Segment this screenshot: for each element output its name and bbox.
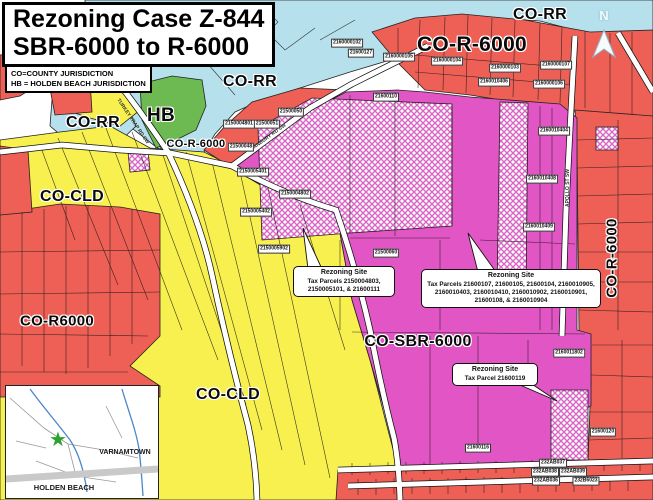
parcel-label: 2150004801	[223, 120, 255, 129]
inset-label-holden-beach: HOLDEN BEACH	[34, 483, 94, 492]
zone-label-co-rr-top-right: CO-RR	[513, 6, 567, 24]
map-title: Rezoning Case Z-844 SBR-6000 to R-6000	[2, 2, 275, 67]
rezoning-callout-1: Rezoning Site Tax Parcels 2150004803, 21…	[293, 266, 395, 297]
callout-body: Tax Parcels 2150004803, 2150005101, & 21…	[298, 278, 390, 294]
parcel-label: 2150005402	[240, 208, 272, 217]
locator-inset-map: ★ VARNAMTOWN HOLDEN BEACH	[5, 385, 159, 499]
inset-label-varnamtown: VARNAMTOWN	[99, 449, 150, 456]
inset-canvas: ★ VARNAMTOWN HOLDEN BEACH	[6, 386, 158, 498]
parcel-label: 232AB036	[532, 477, 560, 486]
zone-label-co-r6000-top: CO-R-6000	[417, 33, 527, 57]
parcel-label: 2150005902	[258, 245, 290, 254]
parcel-label: 2160000104	[431, 57, 463, 66]
parcel-label: 232AB039	[559, 468, 587, 477]
parcel-label: 232AB038	[531, 468, 559, 477]
zone-label-co-r6000-left: CO-R6000	[20, 313, 94, 330]
jurisdiction-legend: CO=COUNTY JURISDICTION HB = HOLDEN BEACH…	[5, 65, 152, 93]
parcel-label: 2160000106	[533, 80, 565, 89]
parcel-label: 2160000105	[383, 53, 415, 62]
parcel-label: 2160010406	[478, 78, 510, 87]
inset-shore-band	[6, 469, 158, 479]
parcel-label: 21500048	[228, 143, 254, 152]
zone-label-co-cld-lower: CO-CLD	[196, 386, 260, 404]
parcel-label: 2150004802	[279, 190, 311, 199]
callout-body: Tax Parcels 21600107, 21600105, 21600104…	[426, 281, 596, 306]
legend-line1: CO=COUNTY JURISDICTION	[11, 69, 146, 79]
parcel-label: 21500050	[278, 108, 304, 117]
road-label-apollo: APOLLO ST SW	[565, 169, 571, 207]
parcel-label: 21600110	[373, 93, 399, 102]
parcel-label: 2160011802	[553, 349, 585, 358]
inset-waterways	[30, 389, 143, 496]
parcel-label: 2150005401	[237, 168, 269, 177]
zone-label-co-cld-upper: CO-CLD	[40, 188, 104, 206]
zone-label-co-rr-left: CO-RR	[66, 114, 120, 132]
callout-body: Tax Parcel 21600119	[457, 375, 533, 383]
zone-label-co-sbr-6000: CO-SBR-6000	[364, 333, 471, 351]
parcel-label: 2160000102	[331, 39, 363, 48]
parcel-label: 2160000107	[540, 61, 572, 70]
zone-label-co-rr-mid: CO-RR	[223, 73, 277, 91]
parcel-label: 21600127	[348, 49, 374, 58]
parcel-label: 21600120	[590, 428, 616, 437]
callout-title: Rezoning Site	[426, 272, 596, 281]
rezoning-callout-3: Rezoning Site Tax Parcel 21600119	[452, 363, 538, 386]
callout-title: Rezoning Site	[298, 269, 390, 278]
legend-line2: HB = HOLDEN BEACH JURISDICTION	[11, 79, 146, 89]
parcel-label: 2160010409	[523, 223, 555, 232]
parcel-label: 21500060	[373, 249, 399, 258]
north-label: N	[599, 8, 608, 23]
parcel-label: 2160010404	[538, 127, 570, 136]
zone-label-co-r6000-small: CO-R-6000	[167, 138, 226, 150]
parcel-label: 232B6023	[572, 477, 599, 486]
callout-title: Rezoning Site	[457, 366, 533, 375]
parcel-label: 21600116	[465, 444, 491, 453]
rezoning-map: TURKEY TRAP RD SW STANBURY RD SW APOLLO …	[0, 0, 653, 500]
parcel-label: 2160000103	[489, 64, 521, 73]
zone-label-co-r6000-right: CO-R-6000	[604, 218, 621, 297]
zone-label-hb: HB	[147, 105, 175, 127]
parcel-label: 232AB037	[539, 459, 567, 468]
map-title-line2: SBR-6000 to R-6000	[13, 34, 264, 62]
site-star-icon: ★	[49, 429, 67, 451]
rezoning-callout-2: Rezoning Site Tax Parcels 21600107, 2160…	[421, 269, 601, 308]
parcel-label: 21500051	[254, 120, 280, 129]
parcel-label: 2160010408	[526, 175, 558, 184]
map-title-line1: Rezoning Case Z-844	[13, 6, 264, 34]
